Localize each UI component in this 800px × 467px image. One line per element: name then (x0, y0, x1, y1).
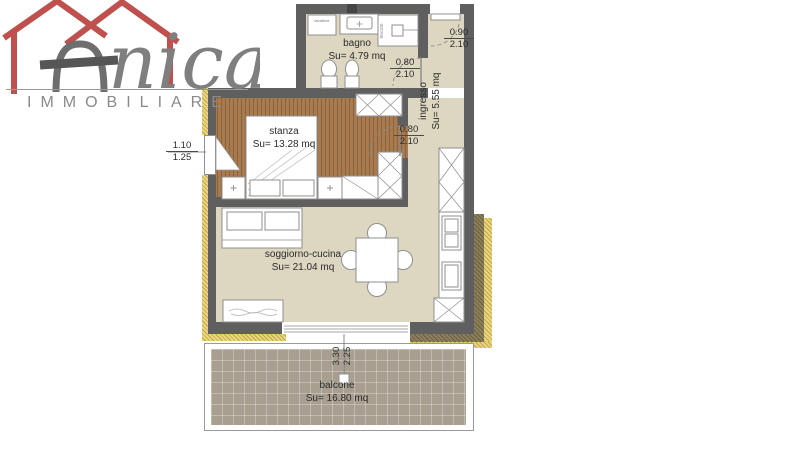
dim-balcone-height: 2.25 (342, 339, 353, 373)
balcone-label: balcone Su= 16.80 mq (277, 380, 397, 405)
floorplan-page: lavatrice 80x100 (0, 0, 800, 467)
dim-stanza-window: 1.10 1.25 (166, 140, 198, 164)
wall-bottom-right (410, 322, 474, 334)
stanza-window (204, 135, 216, 175)
logo-subtitle: IMMOBILIARE (27, 94, 231, 112)
wall-bagno-ingresso-divider (418, 14, 428, 58)
dim-bagno-door: 0.80 2.10 (390, 57, 420, 81)
insulation-right-yellow (484, 218, 492, 348)
dim-bagno-width: 0.80 (390, 57, 420, 69)
balcone-name: balcone (277, 380, 397, 393)
balcone-sliding-door (282, 322, 410, 334)
stanza-label: stanza Su= 13.28 mq (234, 126, 334, 151)
dim-entrance-width: 0.90 (444, 27, 474, 39)
dim-entrance-door: 0.90 2.10 (444, 27, 474, 51)
stanza-name: stanza (234, 126, 334, 139)
entrance-door-gap (430, 4, 460, 14)
insulation-left-lower (202, 175, 208, 341)
soggiorno-area: Su= 21.04 mq (243, 262, 363, 275)
insulation-bottom-left (202, 334, 286, 341)
dim-stanza-door: 0.80 2.10 (394, 124, 424, 148)
wall-stanza-soggiorno-divider (203, 197, 408, 207)
dim-stanza-width: 0.80 (394, 124, 424, 136)
dim-entrance-height: 2.10 (444, 39, 474, 50)
logo-divider (6, 89, 248, 90)
dim-balcone-door: 3.30 2.25 (331, 339, 357, 373)
stanza-area: Su= 13.28 mq (234, 139, 334, 152)
wall-top-left (296, 4, 430, 14)
dim-window-width: 1.10 (166, 140, 198, 152)
dim-stanza-height: 2.10 (394, 136, 424, 147)
soggiorno-label: soggiorno-cucina Su= 21.04 mq (243, 249, 363, 274)
bagno-name: bagno (307, 38, 407, 51)
wall-stanza-right-lower (398, 158, 408, 197)
wall-stanza-right-upper (398, 98, 408, 126)
ingresso-area: Su= 5.55 mq (431, 56, 444, 146)
balcone-area: Su= 16.80 mq (277, 393, 397, 406)
wall-vent (347, 4, 357, 14)
soggiorno-name: soggiorno-cucina (243, 249, 363, 262)
wall-right (464, 4, 474, 334)
insulation-right-olive (474, 214, 484, 342)
wall-bagno-left (296, 4, 306, 98)
dim-bagno-height: 2.10 (390, 69, 420, 80)
insulation-bottom-right-olive (410, 334, 484, 342)
dim-window-height: 1.25 (166, 152, 198, 163)
wall-bottom-left (208, 322, 282, 334)
logo-brand-text: nica (108, 17, 260, 106)
dim-balcone-width: 3.30 (331, 339, 342, 373)
